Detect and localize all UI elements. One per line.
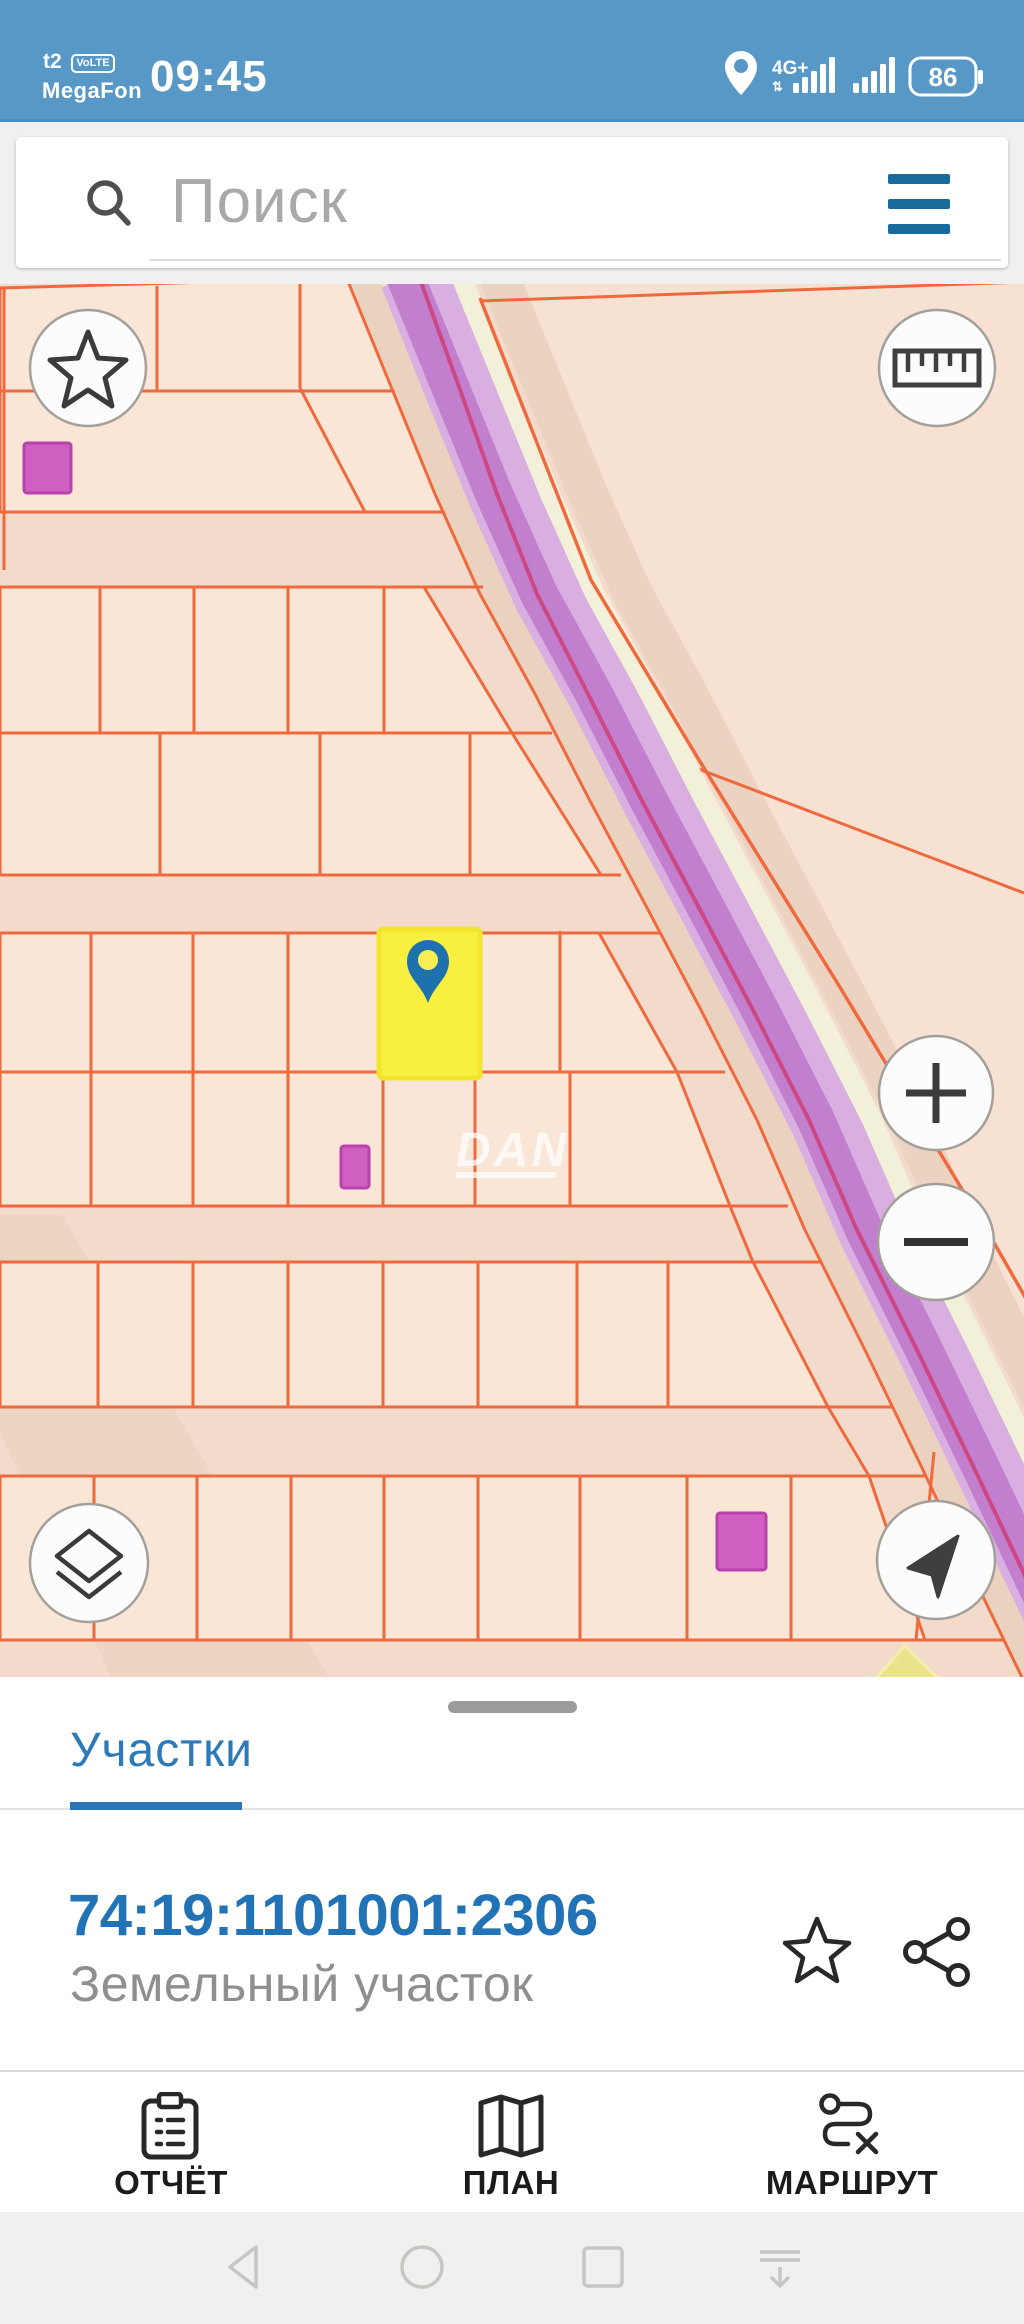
svg-text:DAN: DAN [456, 1124, 569, 1177]
svg-text:⇅: ⇅ [772, 79, 783, 94]
svg-text:86: 86 [929, 62, 958, 92]
svg-text:4G+: 4G+ [772, 58, 808, 79]
